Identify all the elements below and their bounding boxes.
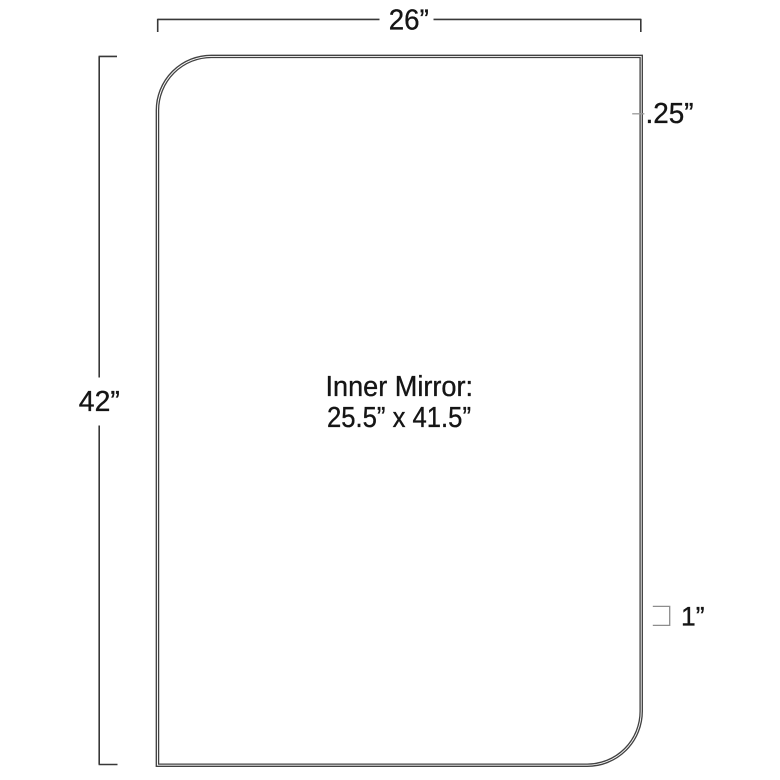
svg-text:Inner Mirror:: Inner Mirror:: [326, 371, 474, 403]
svg-text:25.5” x 41.5”: 25.5” x 41.5”: [327, 402, 471, 434]
svg-text:26”: 26”: [389, 5, 429, 37]
svg-text:42”: 42”: [79, 386, 120, 418]
svg-text:.25”: .25”: [646, 98, 694, 130]
svg-text:1”: 1”: [681, 601, 705, 631]
